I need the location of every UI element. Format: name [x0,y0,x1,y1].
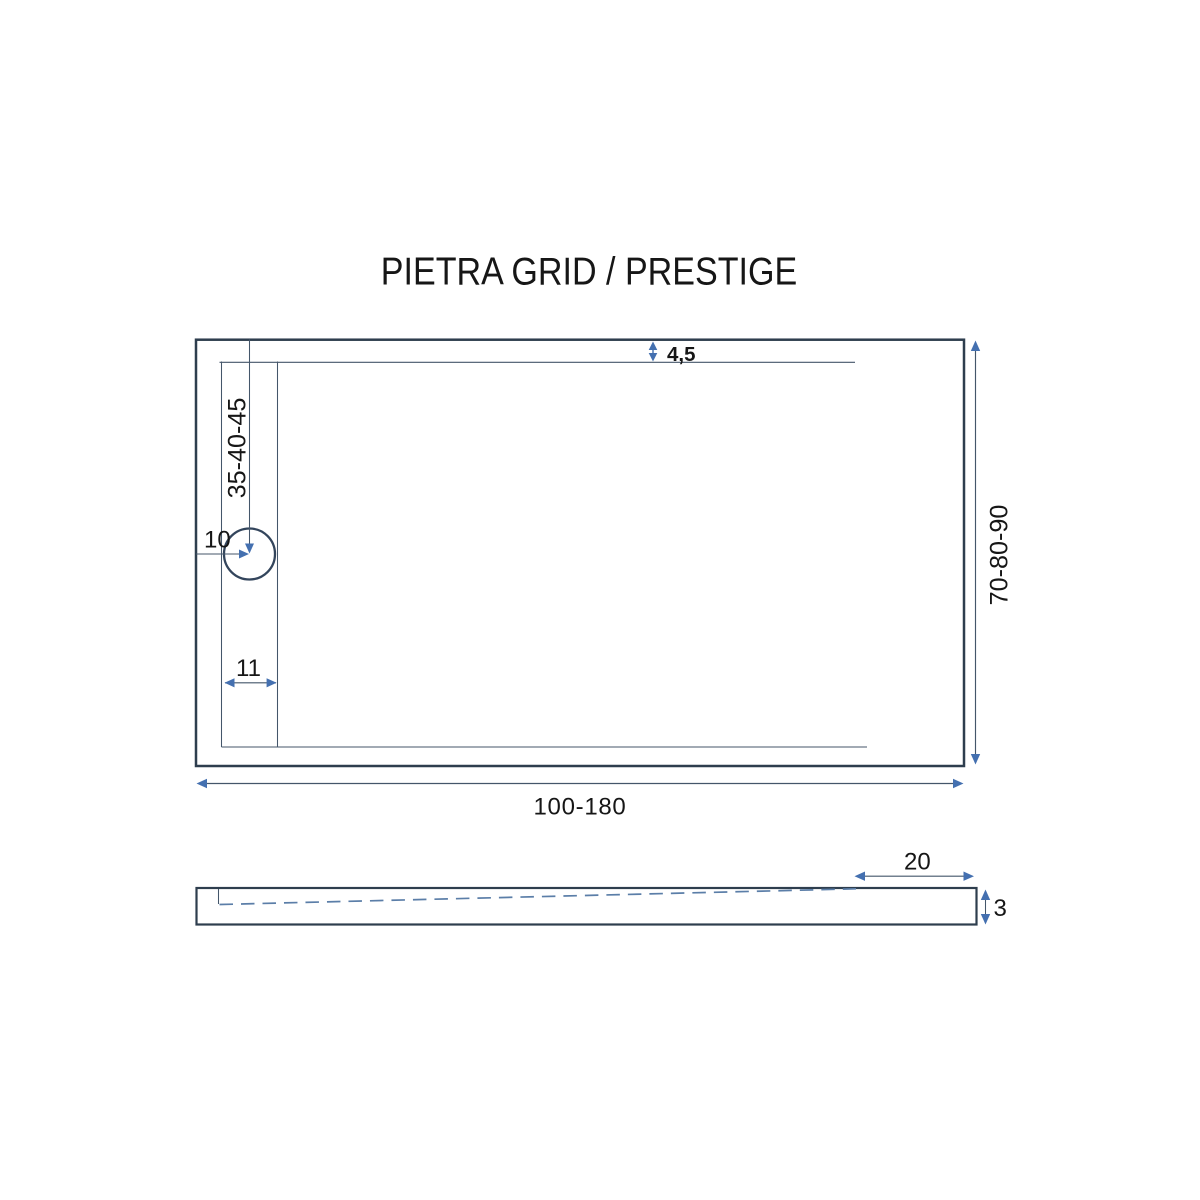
svg-text:4,5: 4,5 [667,343,696,366]
svg-text:100-180: 100-180 [534,794,627,821]
svg-text:20: 20 [904,849,931,876]
svg-text:70-80-90: 70-80-90 [986,505,1014,606]
svg-text:11: 11 [236,655,261,682]
svg-text:PIETRA GRID / PRESTIGE: PIETRA GRID / PRESTIGE [381,250,797,293]
svg-text:3: 3 [994,895,1007,922]
svg-text:35-40-45: 35-40-45 [224,398,252,499]
svg-text:10: 10 [204,527,231,554]
